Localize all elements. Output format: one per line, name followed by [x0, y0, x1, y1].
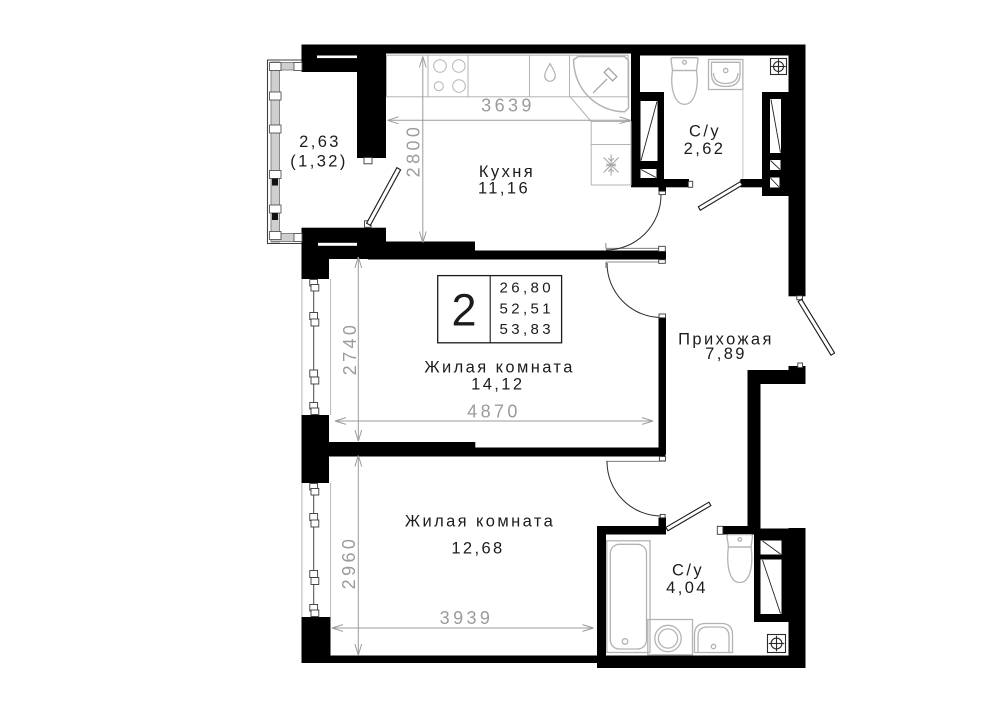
svg-text:11,16: 11,16 [478, 180, 530, 198]
svg-text:52,51: 52,51 [500, 300, 555, 317]
svg-text:2,63: 2,63 [299, 133, 341, 151]
svg-text:2800: 2800 [404, 124, 424, 178]
svg-text:2960: 2960 [339, 536, 359, 590]
svg-text:Кухня: Кухня [479, 163, 535, 181]
svg-text:53,83: 53,83 [500, 321, 555, 338]
svg-text:4870: 4870 [467, 402, 521, 422]
svg-text:С/у: С/у [689, 123, 721, 141]
svg-text:7,89: 7,89 [705, 345, 747, 363]
svg-text:2740: 2740 [340, 322, 360, 376]
svg-text:Жилая комната: Жилая комната [424, 358, 574, 376]
svg-text:С/у: С/у [672, 562, 704, 580]
svg-text:2,62: 2,62 [684, 140, 726, 158]
svg-text:26,80: 26,80 [500, 280, 555, 297]
svg-text:3639: 3639 [481, 96, 535, 116]
svg-text:14,12: 14,12 [471, 376, 524, 394]
svg-text:12,68: 12,68 [451, 540, 504, 558]
svg-text:4,04: 4,04 [666, 579, 708, 597]
svg-text:Жилая комната: Жилая комната [405, 513, 555, 531]
svg-text:3939: 3939 [440, 608, 494, 628]
svg-text:2: 2 [451, 285, 476, 336]
svg-text:(1,32): (1,32) [290, 153, 348, 171]
